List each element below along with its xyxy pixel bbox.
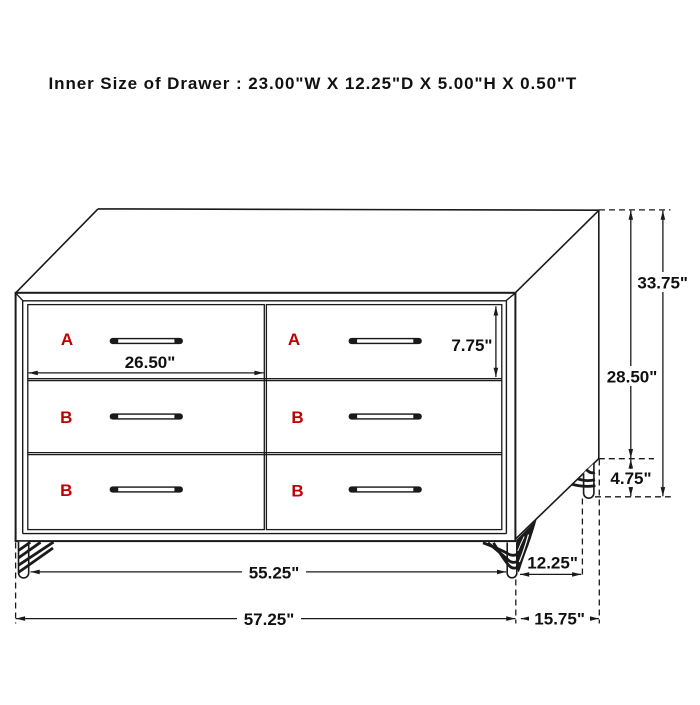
svg-text:B: B xyxy=(291,482,303,501)
svg-text:7.75": 7.75" xyxy=(451,336,492,355)
svg-text:B: B xyxy=(60,408,72,427)
svg-text:12.25": 12.25" xyxy=(527,554,578,573)
svg-text:57.25": 57.25" xyxy=(244,610,295,629)
svg-text:26.50": 26.50" xyxy=(125,353,176,372)
svg-text:55.25": 55.25" xyxy=(249,564,300,583)
svg-text:Inner Size of Drawer : 23.00"W: Inner Size of Drawer : 23.00"W X 12.25"D… xyxy=(49,74,578,93)
svg-text:B: B xyxy=(291,408,303,427)
svg-text:A: A xyxy=(288,330,300,349)
svg-text:A: A xyxy=(61,330,73,349)
svg-text:4.75": 4.75" xyxy=(610,469,651,488)
svg-text:B: B xyxy=(60,481,72,500)
svg-text:28.50": 28.50" xyxy=(607,367,658,386)
svg-text:33.75": 33.75" xyxy=(637,273,688,292)
svg-text:15.75": 15.75" xyxy=(534,609,585,628)
